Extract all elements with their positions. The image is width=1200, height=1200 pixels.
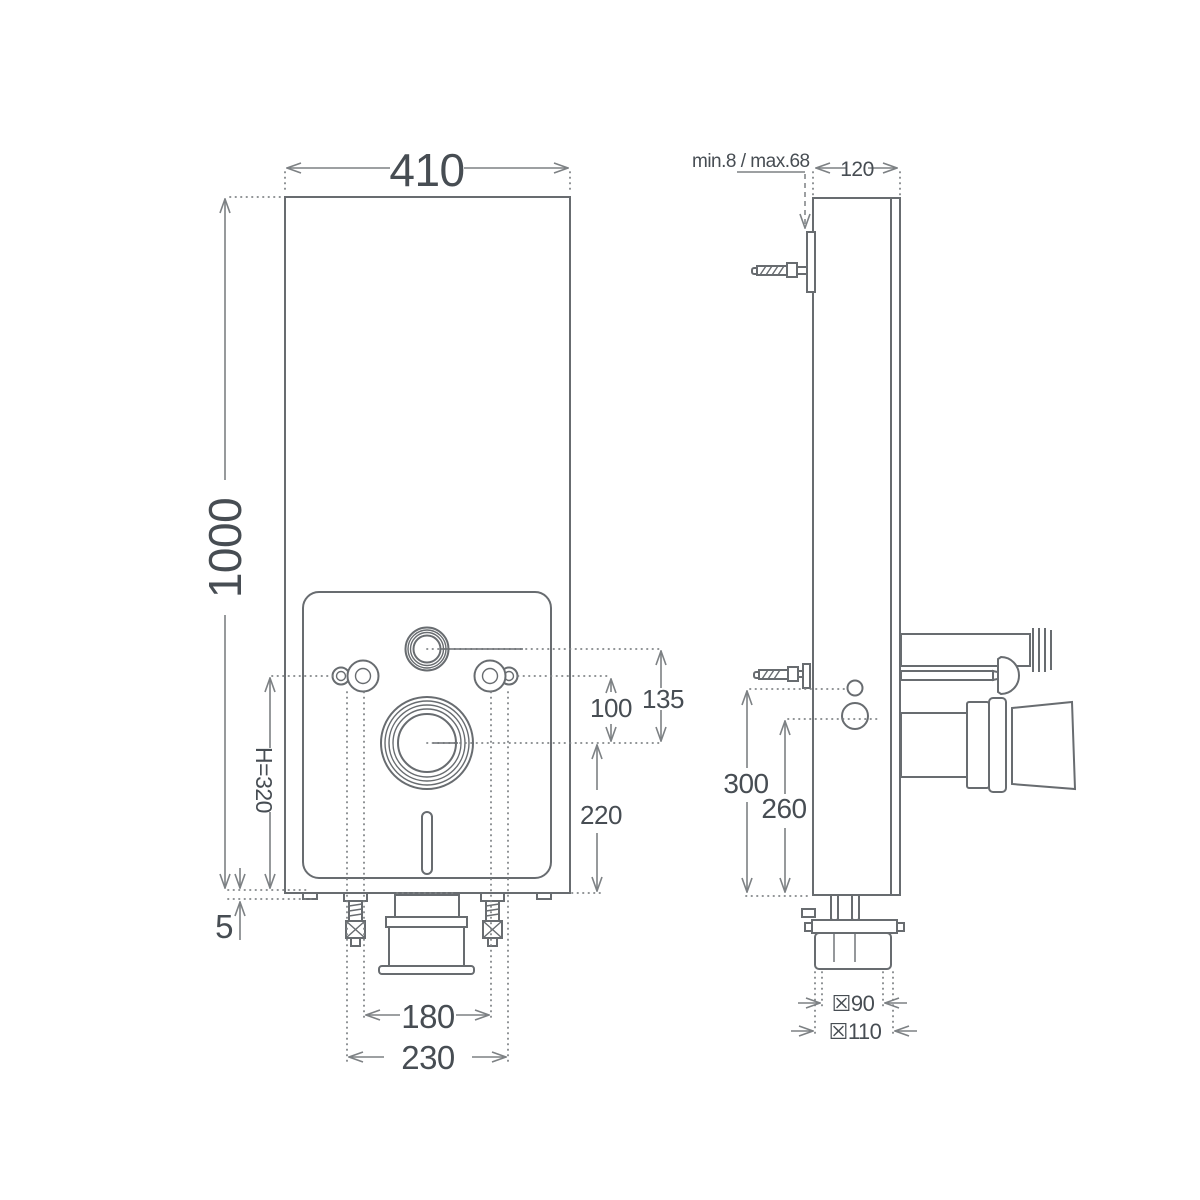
wall-screw-upper: [752, 263, 807, 277]
dim-label-5: 5: [215, 908, 233, 945]
technical-drawing-page: 410 1000 H=320 5: [0, 0, 1200, 1200]
dim-220: 220: [580, 745, 622, 891]
dim-label-100: 100: [590, 693, 632, 723]
flush-bend-pipe: [901, 628, 1051, 672]
outlet-bend-assembly: [901, 698, 1075, 792]
dim-label-260: 260: [761, 793, 806, 824]
foot-tab-right: [537, 893, 551, 899]
dim-label-minmax: min.8 / max.68: [692, 151, 810, 172]
panel-slot: [422, 812, 432, 874]
dim-label-135: 135: [642, 684, 684, 714]
dim-180: 180: [366, 998, 489, 1035]
dim-label-180: 180: [401, 998, 455, 1035]
dim-100: 100: [590, 679, 632, 741]
drain-spigot: [802, 909, 815, 917]
dim-label-220: 220: [580, 800, 622, 830]
left-fixing-bolt: [333, 661, 379, 692]
dim-230: 230: [349, 1039, 506, 1076]
right-fixing-bolt: [475, 661, 518, 692]
front-outlet-pipe: [379, 893, 474, 974]
flush-connection-hole: [842, 703, 868, 729]
dim-label-230: 230: [401, 1039, 455, 1076]
dim-label-d90: ☒90: [832, 991, 875, 1016]
wall-bracket-plate: [807, 232, 815, 292]
side-body-outline: [813, 198, 900, 895]
dim-label-d110: ☒110: [829, 1019, 882, 1044]
cistern-frame-drawing: 410 1000 H=320 5: [0, 0, 1200, 1200]
dim-width-410: 410: [285, 144, 570, 196]
dim-135: 135: [642, 651, 684, 741]
supply-connection-hole: [848, 681, 863, 696]
front-view: 410 1000 H=320 5: [199, 144, 684, 1076]
side-bottom-assembly: [802, 895, 904, 969]
threaded-rod-right: [481, 893, 504, 946]
wall-screw-lower: [754, 664, 810, 688]
dim-label-410: 410: [389, 144, 464, 196]
dim-label-120: 120: [840, 158, 874, 181]
dim-label-1000: 1000: [199, 498, 251, 598]
dim-label-h320: H=320: [251, 747, 277, 813]
dim-depth-120: 120: [813, 158, 900, 195]
side-view: min.8 / max.68 120: [692, 151, 1075, 1044]
dim-flush-height: H=320: [251, 676, 333, 888]
dim-260: 260: [761, 719, 878, 892]
dim-floor-gap: 5: [215, 868, 312, 945]
dim-bracket-range: min.8 / max.68: [692, 151, 810, 228]
